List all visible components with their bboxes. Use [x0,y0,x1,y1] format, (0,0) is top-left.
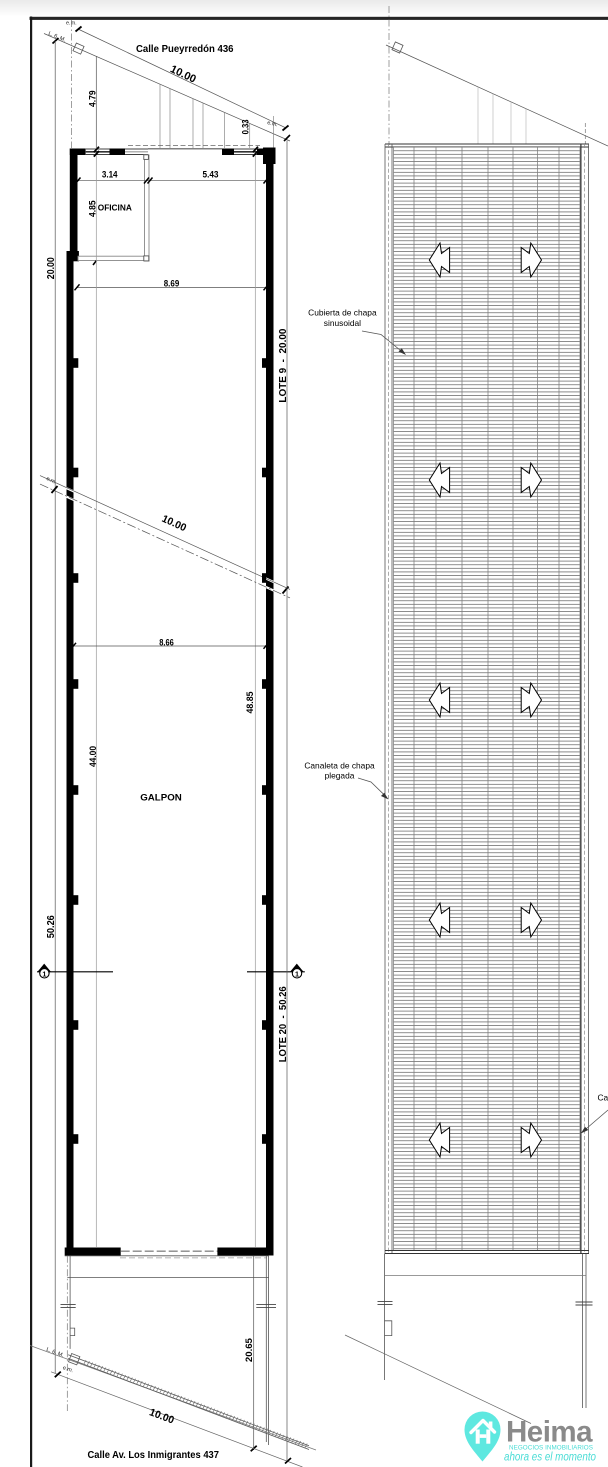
svg-text:5.43: 5.43 [203,169,219,180]
svg-text:Calle Pueyrredón 436: Calle Pueyrredón 436 [136,44,234,55]
svg-text:Cubierta de chapa: Cubierta de chapa [308,308,377,318]
svg-text:LOTE 20 - 50.26: LOTE 20 - 50.26 [278,986,289,1062]
svg-text:Ca: Ca [598,1093,608,1103]
svg-text:20.00: 20.00 [46,257,57,279]
svg-text:44.00: 44.00 [88,746,98,767]
svg-text:48.85: 48.85 [245,691,255,713]
svg-text:1: 1 [295,969,299,978]
svg-text:OFICINA: OFICINA [98,202,132,212]
svg-text:Canaleta de chapa: Canaleta de chapa [304,760,375,770]
svg-text:8.66: 8.66 [159,636,174,647]
svg-text:ahora es el momento: ahora es el momento [504,1450,596,1464]
svg-text:4.79: 4.79 [86,90,97,107]
svg-text:sinusoidal: sinusoidal [324,318,361,328]
svg-text:plegada: plegada [325,771,355,781]
svg-text:Calle Av. Los Inmigrantes 437: Calle Av. Los Inmigrantes 437 [88,1450,220,1461]
svg-text:8.69: 8.69 [164,277,180,288]
svg-text:4.85: 4.85 [86,200,97,217]
svg-text:0.33: 0.33 [240,119,251,134]
svg-text:50.26: 50.26 [46,915,57,939]
svg-text:1: 1 [42,969,46,978]
svg-text:3.14: 3.14 [102,169,118,180]
svg-text:LOTE 9 - 20.00: LOTE 9 - 20.00 [278,328,289,402]
svg-text:Heima: Heima [506,1416,593,1449]
svg-text:20.65: 20.65 [244,1338,254,1362]
svg-text:GALPON: GALPON [140,793,182,804]
